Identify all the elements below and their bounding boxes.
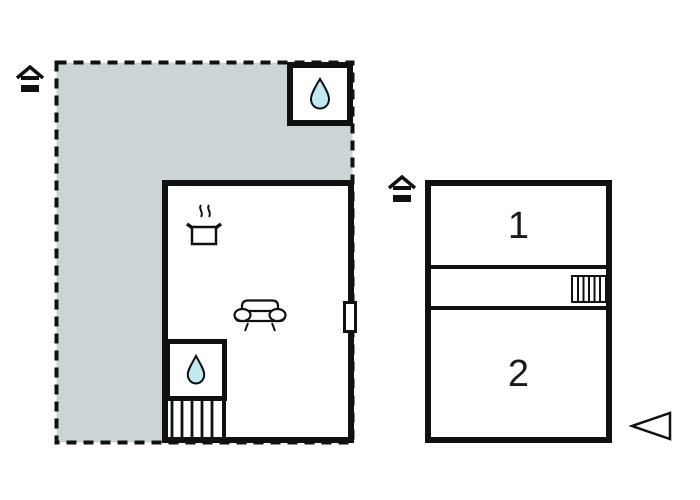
water-drop-icon <box>308 77 332 111</box>
direction-arrow-icon <box>629 410 673 442</box>
floor-divider <box>431 265 606 269</box>
room-2-label: 2 <box>508 355 529 393</box>
entrance-house-icon <box>386 175 418 205</box>
stairs-icon <box>168 400 228 438</box>
shower-box <box>165 339 227 401</box>
window-marker <box>343 301 357 333</box>
cooking-pot-icon <box>185 202 223 252</box>
entrance-house-icon <box>14 65 46 95</box>
stairs-icon <box>571 275 607 303</box>
room-1-label: 1 <box>508 207 529 245</box>
steam-line <box>208 205 210 217</box>
water-drop-icon <box>185 354 207 386</box>
floor-plan: 1 2 <box>0 0 700 500</box>
steam-line <box>200 205 202 217</box>
stairs-treads <box>573 277 605 301</box>
room-2: 2 <box>431 310 606 437</box>
sofa-icon <box>232 296 288 334</box>
room-1: 1 <box>431 186 606 265</box>
shower-box <box>287 62 353 126</box>
